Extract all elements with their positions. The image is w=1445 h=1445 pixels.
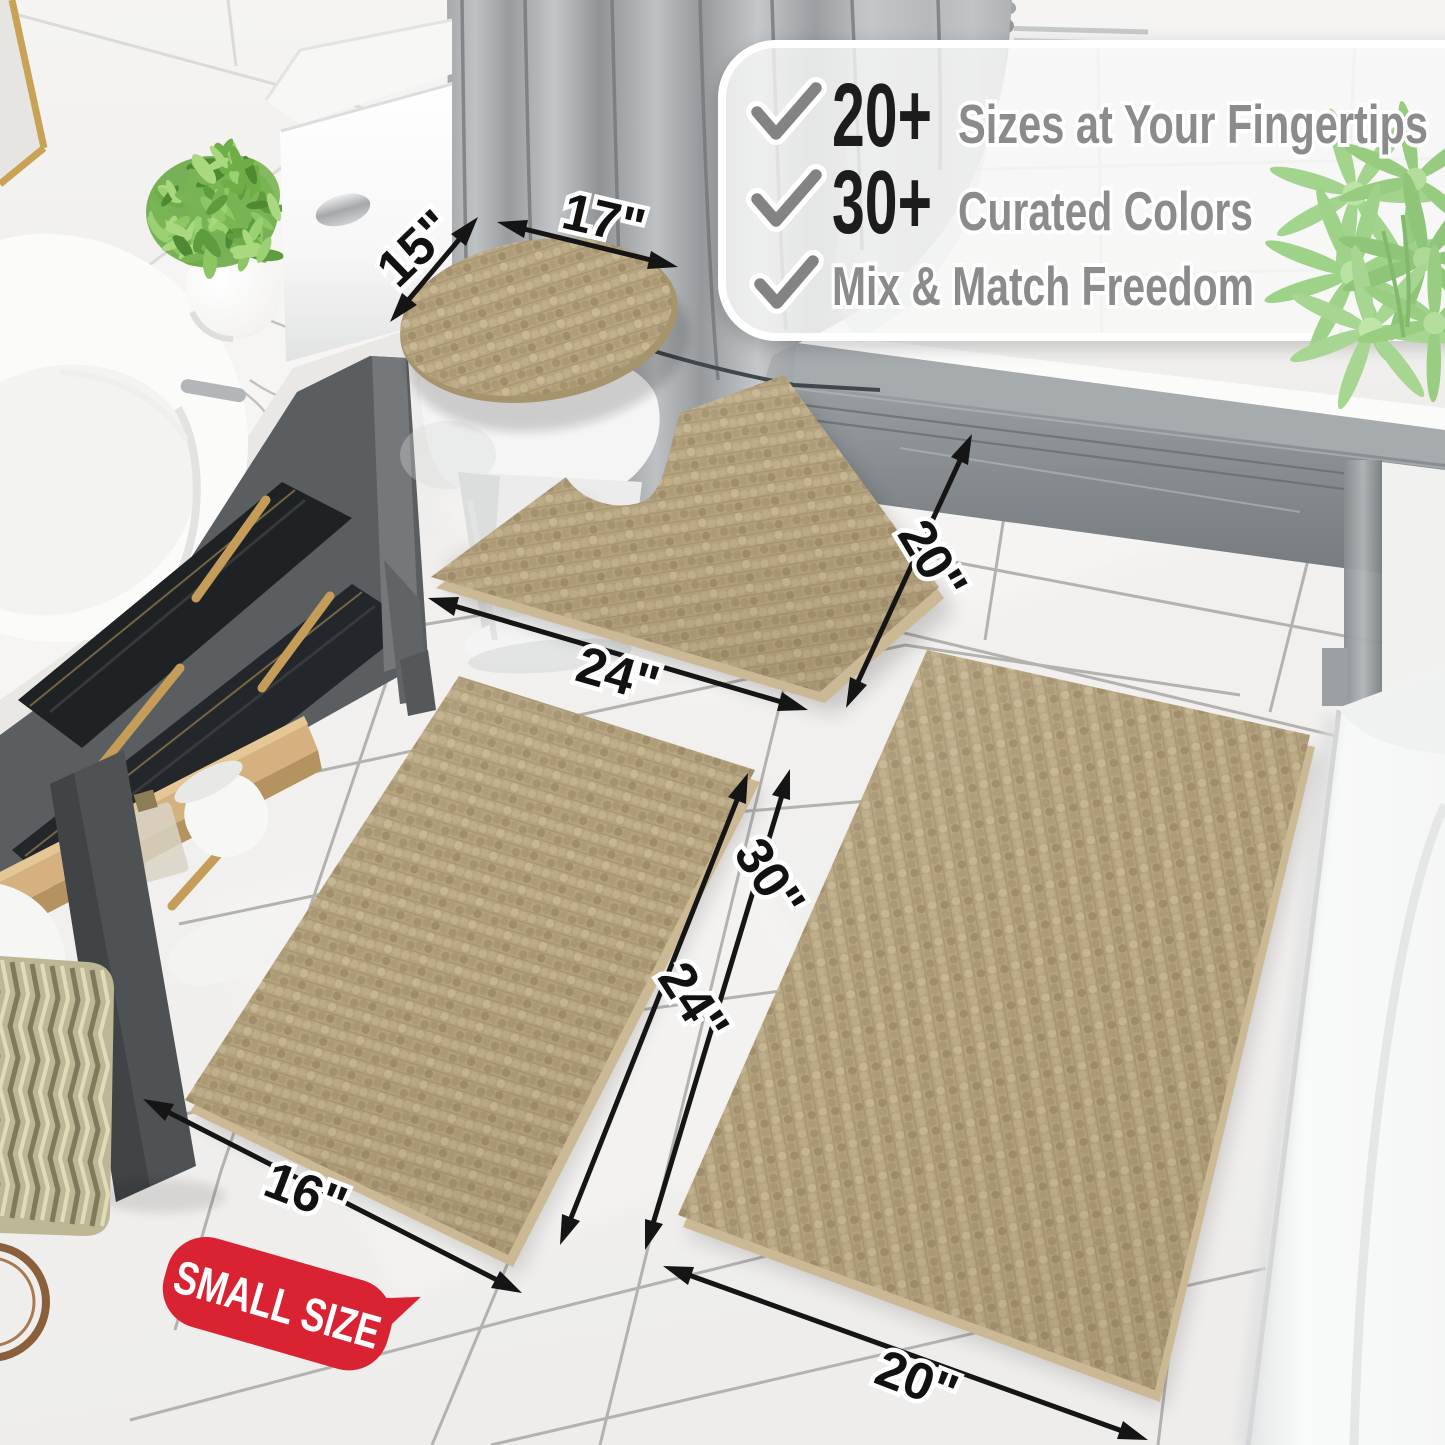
svg-text:Sizes at Your Fingertips: Sizes at Your Fingertips: [958, 93, 1428, 155]
svg-text:Mix & Match Freedom: Mix & Match Freedom: [832, 255, 1254, 317]
svg-text:20+: 20+: [832, 66, 932, 166]
svg-text:Curated Colors: Curated Colors: [958, 180, 1253, 242]
svg-text:30+: 30+: [832, 153, 932, 253]
